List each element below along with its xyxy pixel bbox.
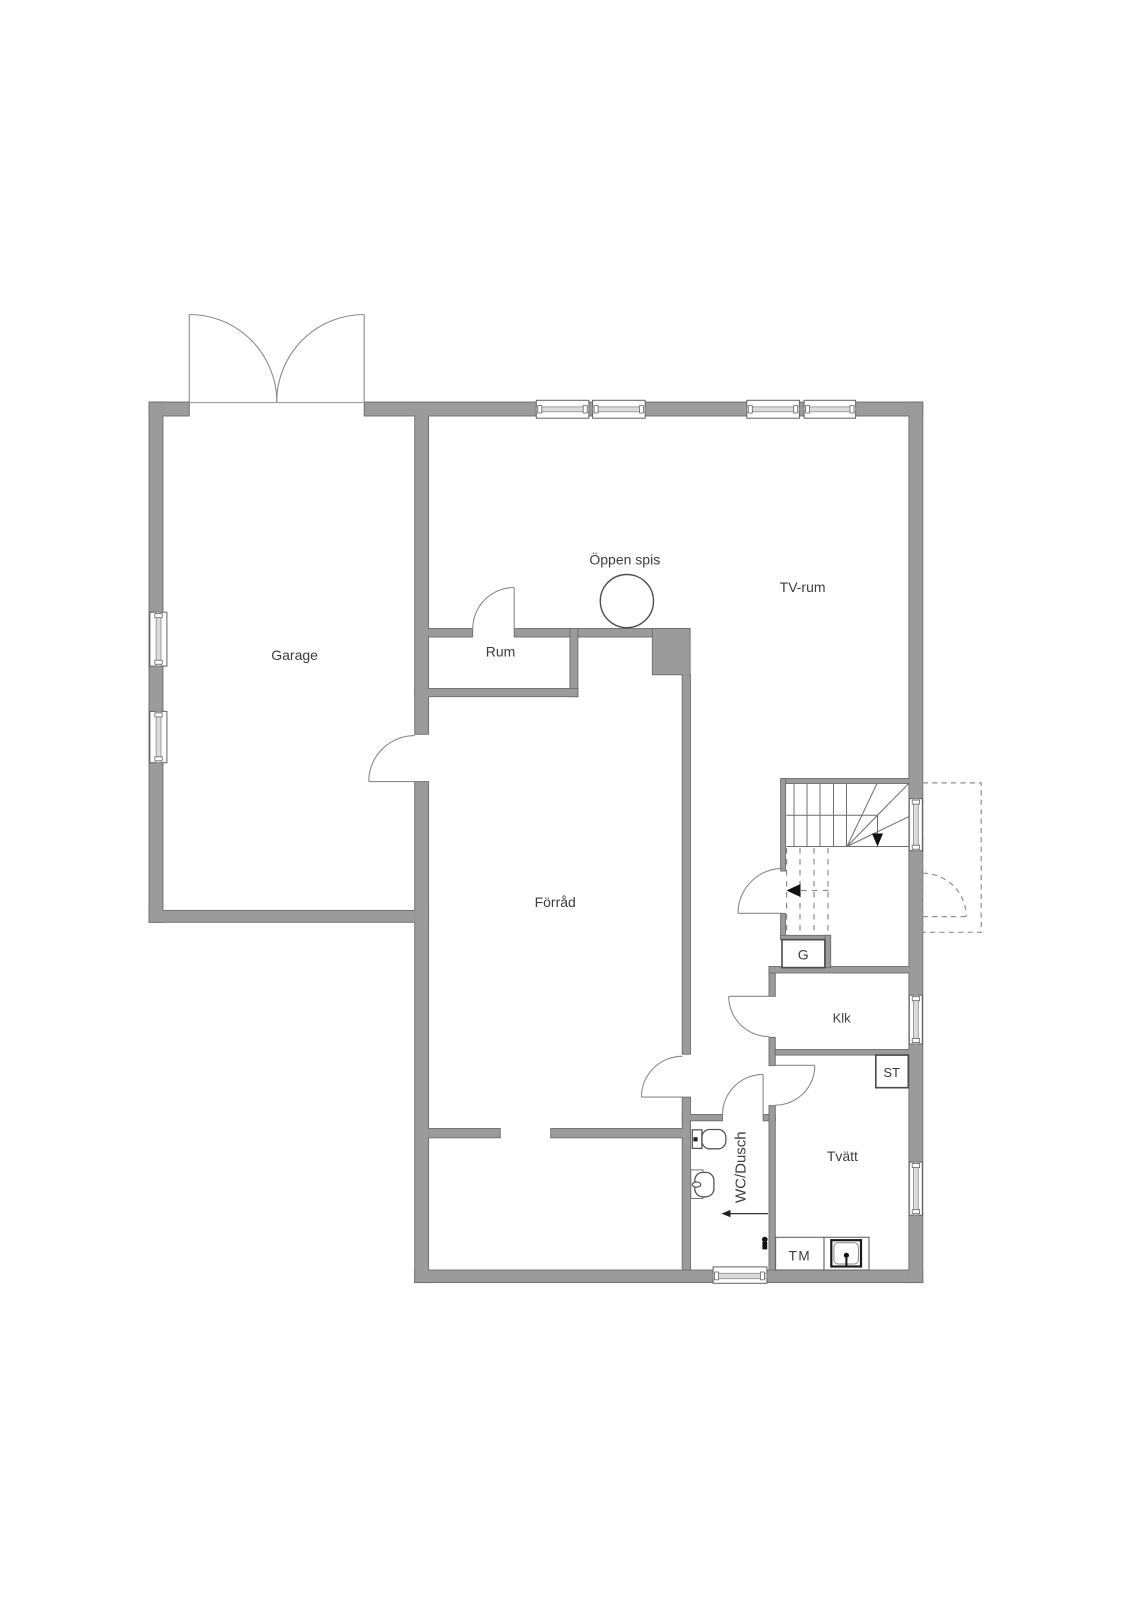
svg-text:Garage: Garage (271, 647, 318, 663)
svg-text:G: G (798, 947, 809, 963)
svg-text:WC/Dusch: WC/Dusch (733, 1131, 750, 1203)
svg-text:Klk: Klk (833, 1010, 852, 1025)
svg-text:TV-rum: TV-rum (780, 579, 826, 595)
svg-text:ST: ST (883, 1065, 900, 1080)
svg-text:Tvätt: Tvätt (827, 1148, 858, 1164)
svg-text:Rum: Rum (486, 644, 516, 660)
svg-text:Öppen spis: Öppen spis (589, 551, 660, 568)
svg-text:TM: TM (789, 1249, 812, 1264)
svg-text:Förråd: Förråd (535, 894, 576, 910)
